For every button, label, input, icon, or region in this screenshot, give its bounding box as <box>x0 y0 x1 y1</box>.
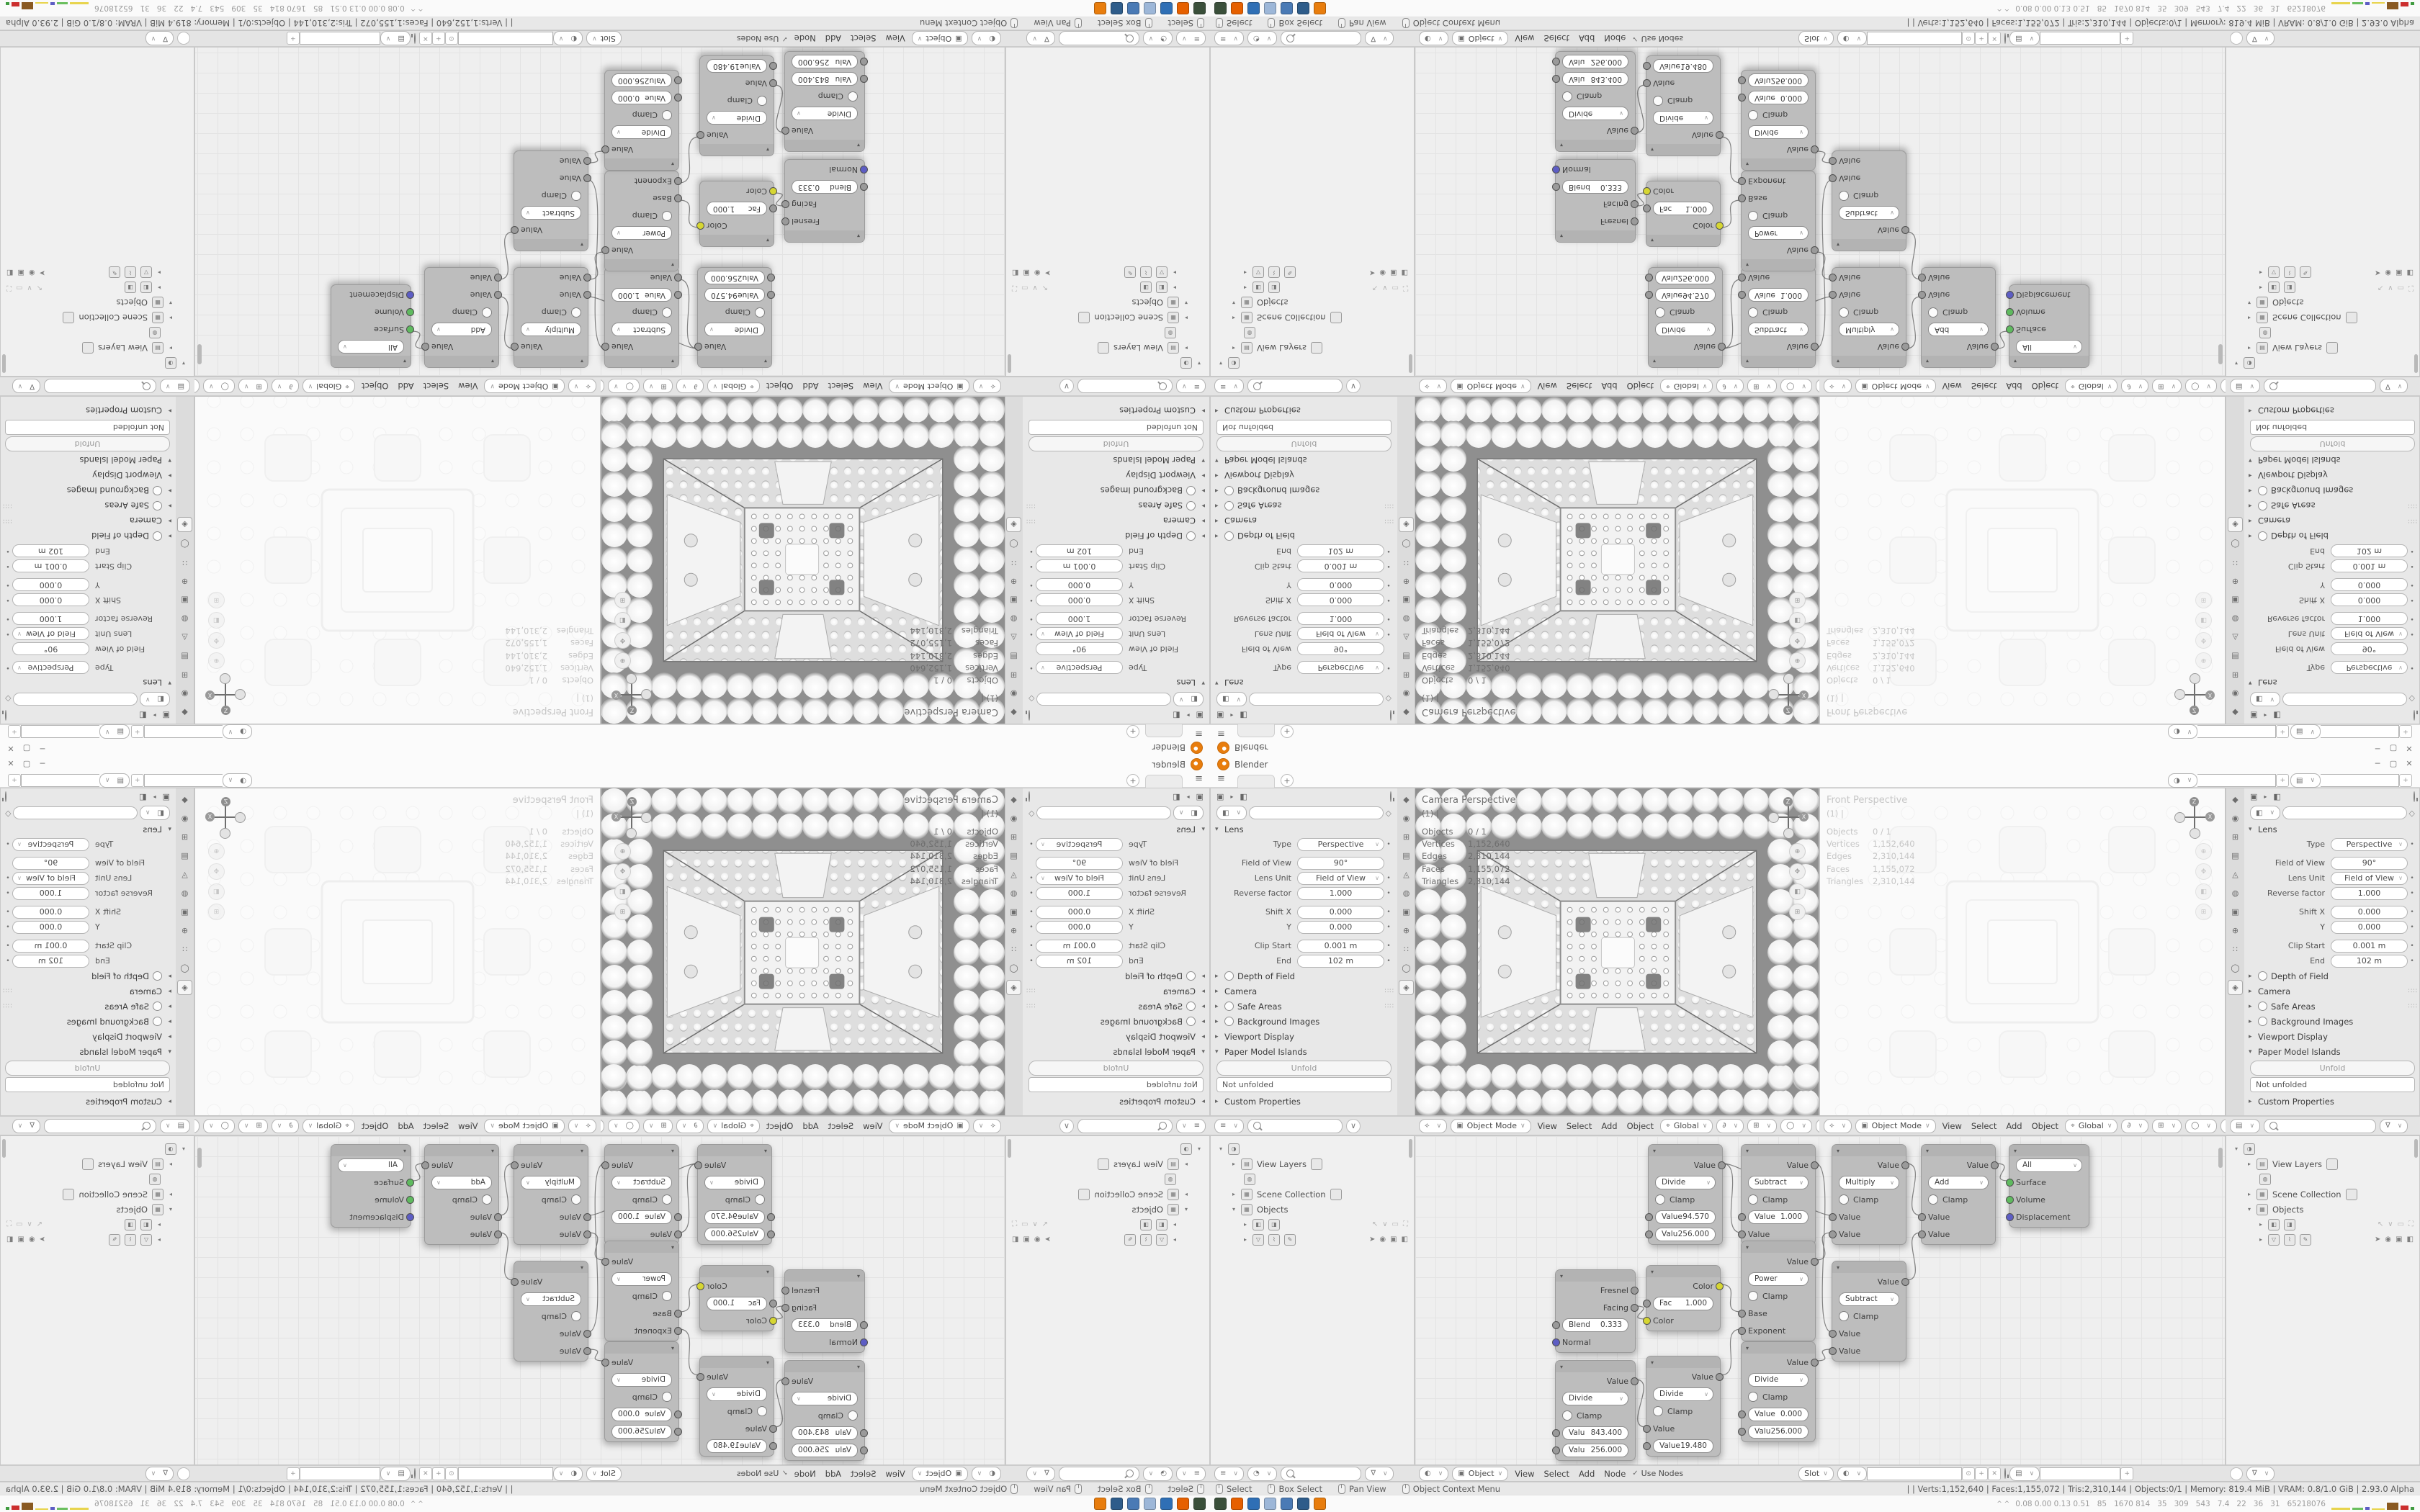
input-socket[interactable] <box>494 1230 502 1238</box>
panel-header-open[interactable]: ▾Paper Model Islands <box>2244 1044 2420 1059</box>
scene-selector-icon-button[interactable]: ◑∨ <box>223 724 252 739</box>
properties-display-dropdown[interactable]: ≡∨ <box>1176 1119 1206 1133</box>
property-value-field[interactable]: 0.000 <box>2331 906 2408 919</box>
outliner-search-input[interactable] <box>2264 379 2376 394</box>
outliner-search-input[interactable] <box>1059 32 1139 46</box>
add-workspace-button[interactable]: + <box>1126 774 1139 787</box>
node-value-field[interactable]: Valu256.000 <box>1655 271 1716 285</box>
id-action-button[interactable]: + <box>432 1467 445 1480</box>
taskbar-icon-firefox[interactable] <box>1231 1498 1243 1510</box>
node-operation-dropdown[interactable]: Subtract <box>1748 1176 1809 1189</box>
properties-tab-0-icon[interactable]: ◆ <box>2228 706 2242 719</box>
properties-tab-6-icon[interactable]: ▣ <box>178 905 192 919</box>
id-action-button[interactable]: ⊙ <box>1962 32 1975 45</box>
pivot-dropdown[interactable]: ∂∨ <box>1716 1119 1744 1133</box>
panel-checkbox[interactable] <box>1224 501 1234 510</box>
filter-toggle-button[interactable]: ∨ <box>1059 379 1074 394</box>
outliner-row[interactable]: ◍ <box>2233 1171 2419 1187</box>
input-socket[interactable] <box>1918 291 1926 299</box>
output-socket[interactable] <box>1631 1377 1639 1385</box>
outliner-scrollbar[interactable] <box>2 354 6 373</box>
node-material-output[interactable]: ▾AllSurfaceVolumeDisplacement <box>2009 284 2089 368</box>
panel-checkbox[interactable] <box>2258 531 2267 541</box>
snap-dropdown[interactable]: ⊞∨ <box>1747 379 1777 394</box>
taskbar-icon-file-explorer[interactable] <box>1281 1498 1293 1510</box>
properties-tab-1-icon[interactable]: ◉ <box>2228 687 2242 701</box>
restriction-icon[interactable]: ➤ <box>40 269 45 276</box>
filter-mode-dropdown[interactable]: ◔∨ <box>1143 32 1173 46</box>
properties-tab-7-icon[interactable]: ⊕ <box>1007 575 1021 588</box>
menu-add[interactable]: Add <box>395 1121 416 1131</box>
gizmo-axis-ball[interactable] <box>2174 812 2185 823</box>
taskbar-icon-hex-editor[interactable] <box>1247 2 1260 14</box>
node-operation-dropdown[interactable]: Divide <box>704 323 765 337</box>
mode-dropdown[interactable]: ▣Object Mode∨ <box>889 379 969 394</box>
id-action-button[interactable]: + <box>1975 32 1988 45</box>
outliner-display-dropdown[interactable]: ▤∨ <box>2230 379 2260 394</box>
id-name-field[interactable] <box>2282 693 2406 706</box>
outliner-row[interactable]: ▾◑ <box>1218 1141 1414 1156</box>
properties-tab-0-icon[interactable]: ◆ <box>2228 793 2242 806</box>
viewport-grid-button[interactable]: ⊞ <box>2195 904 2212 920</box>
input-socket[interactable] <box>1738 1410 1746 1418</box>
property-value-field[interactable]: 1.000 <box>1297 887 1384 900</box>
panel-checkbox[interactable] <box>153 531 162 541</box>
id-name-field[interactable] <box>13 806 137 819</box>
view-layer-selector[interactable]: ▤∨+ <box>8 773 130 788</box>
unfold-button[interactable]: Unfold <box>1216 1061 1391 1076</box>
menu-select[interactable]: Select <box>1968 382 1999 392</box>
id-block-camera-button[interactable]: ◧∨ <box>1216 806 1247 820</box>
view-layer-selector-new-button[interactable]: + <box>2399 774 2412 787</box>
node-header[interactable]: ▾ <box>1742 259 1815 271</box>
menu-object[interactable]: Object <box>2029 1121 2061 1131</box>
clamp-checkbox[interactable] <box>1655 1194 1665 1205</box>
restriction-icon[interactable]: ▣ <box>17 1236 24 1243</box>
properties-tab-10-icon[interactable]: ◈ <box>1006 980 1021 995</box>
taskbar-icon-firefox[interactable] <box>1177 2 1189 14</box>
properties-tab-3-icon[interactable]: ▤ <box>1007 649 1021 663</box>
properties-tab-6-icon[interactable]: ▣ <box>1399 593 1413 607</box>
node-header[interactable]: ▾ <box>331 356 411 367</box>
menu-view[interactable]: View <box>860 382 885 392</box>
proportional-edit-dropdown[interactable]: ◯∨ <box>1780 379 1812 394</box>
workspace-tab[interactable] <box>1237 775 1275 788</box>
panel-header-open[interactable]: ▾Lens <box>1023 675 1209 690</box>
navigation-gizmo[interactable]: ZX <box>205 797 246 837</box>
property-value-field[interactable]: 90° <box>2331 857 2408 870</box>
input-socket[interactable] <box>1738 1428 1746 1436</box>
gizmo-axis-ball[interactable] <box>2174 689 2185 700</box>
viewport-grid-button[interactable]: ⊞ <box>208 904 225 920</box>
panel-checkbox[interactable] <box>1186 531 1196 541</box>
restriction-icon[interactable]: ◉ <box>2385 1236 2391 1243</box>
property-value-field[interactable]: 102 m <box>1036 955 1123 968</box>
node-operation-dropdown[interactable]: Subtract <box>1839 207 1899 220</box>
snap-dropdown[interactable]: ⊞∨ <box>2152 379 2182 394</box>
outliner-scrollbar[interactable] <box>1008 354 1011 373</box>
input-socket[interactable] <box>406 308 414 316</box>
restriction-icon[interactable]: ➤ <box>1045 1236 1051 1243</box>
output-socket[interactable] <box>421 343 429 351</box>
panel-checkbox[interactable] <box>153 1017 162 1026</box>
input-socket[interactable] <box>1738 1230 1746 1238</box>
output-socket[interactable] <box>781 1304 789 1312</box>
view-layer-selector-icon-button[interactable]: ▤∨ <box>99 724 130 739</box>
pivot-dropdown[interactable]: ∂∨ <box>676 379 704 394</box>
menu-object[interactable]: Object <box>2029 382 2061 392</box>
panel-header-closed[interactable]: ▸Viewport Display <box>1023 1029 1209 1044</box>
viewport-grid-button[interactable]: ⊞ <box>1789 904 1806 920</box>
node-operation-dropdown[interactable]: Add <box>431 323 492 337</box>
maximize-button[interactable]: ▢ <box>19 741 35 755</box>
outliner-row-object[interactable]: ▸◧◨↖∨▭⛶ <box>1218 280 1414 295</box>
properties-tab-4-icon[interactable]: ◬ <box>1007 631 1021 644</box>
properties-tab-9-icon[interactable]: ◯ <box>2228 961 2242 975</box>
node-header[interactable]: ▾ <box>1742 1241 1815 1253</box>
outliner-row-scene-collection[interactable]: ▸▦Scene Collection <box>1218 1187 1414 1202</box>
node-value-field[interactable]: Value1.000 <box>1748 1210 1809 1224</box>
node-operation-dropdown[interactable]: All <box>2016 1158 2082 1172</box>
taskbar-icon-blender-app[interactable] <box>1314 2 1326 14</box>
taskbar-icon-capture-app[interactable] <box>1193 1498 1206 1510</box>
scene-selector-new-button[interactable]: + <box>131 774 144 787</box>
properties-tab-6-icon[interactable]: ▣ <box>2228 593 2242 607</box>
unfold-status-field[interactable]: Not unfolded <box>5 420 170 435</box>
use-nodes-checkbox[interactable]: ✓Use Nodes <box>737 34 788 43</box>
node-math-subtract-1[interactable]: ▾ValueSubtractClampValue1.000Value <box>604 1144 679 1245</box>
properties-tab-6-icon[interactable]: ▣ <box>1007 905 1021 919</box>
node-value-field[interactable]: Value0.000 <box>1748 1408 1809 1421</box>
id-action-button[interactable]: ⊙ <box>1962 1467 1975 1480</box>
property-value-field[interactable]: Perspective <box>1036 838 1123 851</box>
restriction-icon[interactable]: ▣ <box>17 269 24 276</box>
property-value-field[interactable]: 0.000 <box>1297 921 1384 934</box>
restriction-icon[interactable]: ↖ <box>1042 1220 1048 1228</box>
property-value-field[interactable]: Field of View <box>1297 872 1384 885</box>
node-operation-dropdown[interactable]: Divide <box>1655 323 1716 337</box>
gizmo-axis-ball[interactable] <box>641 689 652 700</box>
outliner-row-scene-collection[interactable]: ▸▦Scene Collection <box>1 310 187 325</box>
restriction-icon[interactable]: ∨ <box>27 284 32 292</box>
panel-header-closed[interactable]: ▸Depth of Field <box>1211 528 1397 544</box>
menu-add[interactable]: Add <box>1598 1121 1620 1131</box>
workspace-tab[interactable] <box>1145 775 1183 788</box>
outliner-filter-dropdown[interactable]: ∇∨ <box>12 379 40 394</box>
node-header[interactable]: ▾ <box>1649 356 1722 367</box>
restriction-icon[interactable]: ⛶ <box>6 1220 12 1228</box>
property-value-field[interactable]: Perspective <box>1297 838 1384 851</box>
workspace-menu-button[interactable]: ≡ <box>1195 773 1203 784</box>
menu-object[interactable]: Object <box>359 1121 391 1131</box>
node-header[interactable]: ▾ <box>1556 1270 1635 1282</box>
node-header[interactable]: ▾ <box>425 1145 498 1156</box>
properties-tab-3-icon[interactable]: ▤ <box>2228 649 2242 663</box>
input-socket[interactable] <box>769 1442 777 1450</box>
node-operation-dropdown[interactable]: Divide <box>707 1387 767 1401</box>
properties-tab-10-icon[interactable]: ◈ <box>1399 517 1414 532</box>
input-socket[interactable] <box>494 274 502 282</box>
scene-selector-icon-button[interactable]: ◑∨ <box>223 773 252 788</box>
properties-tab-7-icon[interactable]: ⊕ <box>1007 924 1021 937</box>
property-value-field[interactable]: 102 m <box>2331 545 2408 558</box>
clamp-checkbox[interactable] <box>1839 191 1849 201</box>
clamp-checkbox[interactable] <box>571 191 581 201</box>
outliner-row[interactable]: ◍ <box>1218 1171 1414 1187</box>
property-value-field[interactable]: 90° <box>1036 643 1123 656</box>
snap-dropdown[interactable]: ⊞∨ <box>643 1119 673 1133</box>
node-math-power[interactable]: ▾ValuePowerClampBaseExponent <box>1741 171 1816 271</box>
properties-tab-0-icon[interactable]: ◆ <box>1399 706 1413 719</box>
input-socket[interactable] <box>1829 157 1837 165</box>
gizmo-x-axis[interactable]: X <box>2205 690 2215 700</box>
properties-tab-8-icon[interactable]: ∷ <box>1399 942 1413 956</box>
input-socket[interactable] <box>494 1213 502 1221</box>
node-math-add[interactable]: ▾ValueAddClampValueValue <box>1921 267 1996 368</box>
input-socket[interactable] <box>406 291 414 299</box>
restriction-icon[interactable]: ◧ <box>2407 1236 2414 1243</box>
input-socket[interactable] <box>1552 1321 1560 1329</box>
scene-selector-icon-button[interactable]: ◑∨ <box>2168 773 2197 788</box>
taskbar-icon-notepad[interactable] <box>1264 2 1276 14</box>
outliner-row-view-layers[interactable]: ▸▤View Layers <box>1218 1156 1414 1171</box>
clamp-checkbox[interactable] <box>1562 1410 1572 1421</box>
outliner-filter-dropdown[interactable]: ∇∨ <box>1026 32 1054 46</box>
viewport-grid-button[interactable]: ⊞ <box>2195 592 2212 608</box>
node-value-field[interactable]: Fac1.000 <box>707 1297 767 1310</box>
outliner-row-objects[interactable]: ▾▦Objects <box>1006 1202 1202 1217</box>
properties-tab-9-icon[interactable]: ◯ <box>1399 961 1413 975</box>
node-header[interactable]: ▾ <box>700 144 774 156</box>
taskbar-icon-file-explorer[interactable] <box>1127 2 1139 14</box>
properties-tab-9-icon[interactable]: ◯ <box>178 961 192 975</box>
outliner-row[interactable]: ▾◑ <box>2233 356 2419 371</box>
sync-icon[interactable] <box>177 32 190 45</box>
restriction-icon[interactable]: ⛶ <box>2408 1220 2414 1228</box>
node-header[interactable]: ▾ <box>1556 140 1635 151</box>
panel-header-closed[interactable]: ▸Custom Properties <box>1211 403 1397 418</box>
navigation-gizmo[interactable]: ZX <box>2174 797 2215 837</box>
input-socket[interactable] <box>767 1213 775 1221</box>
restriction-icon[interactable]: ▣ <box>2396 269 2402 276</box>
node-header[interactable]: ▾ <box>1646 1356 1720 1368</box>
outliner-filter-dropdown[interactable]: ∇∨ <box>1365 1467 1393 1481</box>
material-name-field[interactable] <box>1867 32 1962 45</box>
scene-selector-new-button[interactable]: + <box>2276 725 2289 738</box>
node-value-field[interactable]: Value94.570 <box>1655 289 1716 302</box>
input-socket[interactable] <box>1552 58 1560 66</box>
texture-name-field[interactable] <box>300 1467 380 1480</box>
node-operation-dropdown[interactable]: Divide <box>1562 107 1628 121</box>
slot-dropdown[interactable]: Slot∨ <box>586 32 622 46</box>
property-value-field[interactable]: Field of View <box>1297 628 1384 641</box>
node-header[interactable]: ▾ <box>698 356 771 367</box>
node-value-field[interactable]: Valu256.000 <box>704 271 765 285</box>
restriction-icon[interactable]: ➤ <box>40 1236 45 1243</box>
properties-tab-0-icon[interactable]: ◆ <box>1399 793 1413 806</box>
shader-type-dropdown[interactable]: ▣Object∨ <box>912 1467 968 1481</box>
node-header[interactable]: ▾ <box>700 1266 774 1277</box>
node-header[interactable]: ▾ <box>1742 1145 1815 1156</box>
clamp-checkbox[interactable] <box>1748 1392 1758 1402</box>
node-value-field[interactable]: Valu256.000 <box>611 1425 672 1439</box>
outliner-row-object[interactable]: ▸◧◨↖∨▭⛶ <box>2233 1217 2419 1232</box>
outliner-row[interactable]: ◍ <box>1 1171 187 1187</box>
panel-checkbox[interactable] <box>1186 501 1196 510</box>
taskbar-icon-file-explorer[interactable] <box>1281 2 1293 14</box>
panel-checkbox[interactable] <box>1186 486 1196 495</box>
menu-view[interactable]: View <box>883 34 908 44</box>
properties-tab-0-icon[interactable]: ◆ <box>178 793 192 806</box>
maximize-button[interactable]: ▢ <box>2385 757 2401 771</box>
outliner-scrollbar[interactable] <box>2414 1139 2418 1158</box>
node-value-field[interactable]: Value0.000 <box>611 91 672 105</box>
input-socket[interactable] <box>1552 1338 1560 1346</box>
node-header[interactable]: ▾ <box>1832 239 1906 251</box>
input-socket[interactable] <box>583 1230 591 1238</box>
input-socket[interactable] <box>674 1310 682 1318</box>
navigation-gizmo[interactable]: ZX <box>205 675 246 715</box>
property-value-field[interactable]: 90° <box>1036 857 1123 870</box>
input-socket[interactable] <box>1552 183 1560 191</box>
id-block-camera-button[interactable]: ◧∨ <box>1216 692 1247 706</box>
node-math-subtract-1[interactable]: ▾ValueSubtractClampValue1.000Value <box>604 267 679 368</box>
restriction-icon[interactable]: ➤ <box>1045 269 1051 276</box>
clamp-checkbox[interactable] <box>482 1194 492 1205</box>
clamp-checkbox[interactable] <box>1748 307 1758 318</box>
view-layer-selector[interactable]: ▤∨+ <box>8 724 130 739</box>
outliner-search-input[interactable] <box>1281 32 1361 46</box>
panel-header-closed[interactable]: ▸Depth of Field <box>1023 528 1209 544</box>
taskbar-icon-notepad[interactable] <box>1264 1498 1276 1510</box>
properties-tab-5-icon[interactable]: ◍ <box>1007 612 1021 626</box>
panel-checkbox[interactable] <box>2258 1002 2267 1011</box>
id-name-field[interactable] <box>1036 693 1170 706</box>
viewport-grid-button[interactable]: ⊞ <box>614 904 631 920</box>
outliner-filter-dropdown[interactable]: ∇∨ <box>2380 379 2408 394</box>
properties-tab-6-icon[interactable]: ▣ <box>1399 905 1413 919</box>
scene-selector-value[interactable] <box>2197 725 2276 738</box>
properties-tab-7-icon[interactable]: ⊕ <box>178 924 192 937</box>
outliner-row-object[interactable]: ▸▽⌇✎➤◉▣◧ <box>1 1232 187 1247</box>
output-socket[interactable] <box>1811 1161 1819 1169</box>
taskbar-icon-image-viewer[interactable] <box>1111 1498 1123 1510</box>
node-header[interactable]: ▾ <box>605 259 678 271</box>
viewport-pan-button[interactable]: ✥ <box>208 632 225 649</box>
node-operation-dropdown[interactable]: Add <box>431 1176 492 1189</box>
outliner-row-scene-collection[interactable]: ▸▦Scene Collection <box>1006 310 1202 325</box>
node-value-field[interactable]: Value1.000 <box>611 289 672 302</box>
node-math-divide-3[interactable]: ▾ValueDivideClampValueValue19.480 <box>1646 1356 1721 1457</box>
node-math-divide-2[interactable]: ▾ValueDivideClampValu843.400Valu256.000 <box>784 51 865 152</box>
node-layer-weight[interactable]: ▾FresnelFacingBlend0.333Normal <box>1555 159 1636 243</box>
output-socket[interactable] <box>781 217 789 225</box>
node-math-divide-2[interactable]: ▾ValueDivideClampValu843.400Valu256.000 <box>784 1360 865 1461</box>
properties-tab-9-icon[interactable]: ◯ <box>2228 537 2242 551</box>
output-socket[interactable] <box>601 1258 609 1266</box>
add-workspace-button[interactable]: + <box>1281 774 1294 787</box>
node-math-power[interactable]: ▾ValuePowerClampBaseExponent <box>1741 1241 1816 1341</box>
navigation-gizmo[interactable]: ZX <box>1768 675 1809 715</box>
clamp-checkbox[interactable] <box>571 307 581 318</box>
filter-mode-dropdown[interactable]: ◔∨ <box>1247 32 1277 46</box>
node-value-field[interactable]: Valu256.000 <box>1655 1228 1716 1241</box>
pin-icon[interactable] <box>414 1468 416 1479</box>
output-socket[interactable] <box>1716 131 1724 139</box>
node-operation-dropdown[interactable]: Multiply <box>1839 1176 1899 1189</box>
node-operation-dropdown[interactable]: Multiply <box>1839 323 1899 337</box>
unfold-status-field[interactable]: Not unfolded <box>2250 420 2415 435</box>
properties-tab-3-icon[interactable]: ▤ <box>178 849 192 863</box>
outliner-display-dropdown[interactable]: ≡∨ <box>1176 32 1206 46</box>
node-operation-dropdown[interactable]: All <box>2016 341 2082 354</box>
viewport-pan-button[interactable]: ✥ <box>614 863 631 880</box>
output-socket[interactable] <box>1901 1161 1909 1169</box>
node-value-field[interactable]: Value19.480 <box>1653 60 1713 73</box>
panel-checkbox[interactable] <box>153 501 162 510</box>
property-value-field[interactable]: 90° <box>12 857 89 870</box>
property-value-field[interactable]: 0.000 <box>1036 906 1123 919</box>
clamp-checkbox[interactable] <box>662 1194 672 1205</box>
property-value-field[interactable]: 0.001 m <box>1297 560 1384 573</box>
restriction-icon[interactable]: ◉ <box>1034 1236 1041 1243</box>
input-socket[interactable] <box>1829 274 1837 282</box>
property-value-field[interactable]: 0.001 m <box>1036 560 1123 573</box>
viewport-pan-button[interactable]: ✥ <box>2195 863 2212 880</box>
properties-tab-5-icon[interactable]: ◍ <box>178 886 192 900</box>
node-math-divide-4[interactable]: ▾ValueDivideClampValue0.000Valu256.000 <box>1741 1341 1816 1442</box>
output-socket[interactable] <box>1811 246 1819 254</box>
node-math-divide-4[interactable]: ▾ValueDivideClampValue0.000Valu256.000 <box>1741 70 1816 171</box>
editor-type-button[interactable]: ⟡∨ <box>568 1119 596 1133</box>
id-action-button[interactable]: ✕ <box>419 1467 432 1480</box>
input-socket[interactable] <box>767 1230 775 1238</box>
property-value-field[interactable]: Field of View <box>1036 628 1123 641</box>
node-operation-dropdown[interactable]: Divide <box>707 112 767 125</box>
clamp-checkbox[interactable] <box>662 1392 672 1402</box>
taskbar-icon-firefox[interactable] <box>1177 1498 1189 1510</box>
input-socket[interactable] <box>860 1429 868 1437</box>
view-layer-selector-value[interactable] <box>2321 725 2399 738</box>
node-header[interactable]: ▾ <box>700 1356 774 1368</box>
properties-tab-6-icon[interactable]: ▣ <box>2228 905 2242 919</box>
node-operation-dropdown[interactable]: Subtract <box>1839 1292 1899 1306</box>
input-socket[interactable] <box>583 1213 591 1221</box>
clamp-checkbox[interactable] <box>1748 1194 1758 1205</box>
outliner-display-dropdown[interactable]: ▤∨ <box>160 379 190 394</box>
viewport-camera-button[interactable]: ◧ <box>2195 612 2212 629</box>
menu-view[interactable]: View <box>1940 382 1965 392</box>
panel-header-closed[interactable]: ▸Custom Properties <box>1211 1094 1397 1109</box>
input-socket[interactable] <box>1738 177 1746 185</box>
property-value-field[interactable]: Perspective <box>12 662 89 675</box>
workspace-menu-button[interactable]: ≡ <box>1195 728 1203 739</box>
mode-dropdown[interactable]: ▣Object Mode∨ <box>484 1119 564 1133</box>
pivot-dropdown[interactable]: ∂∨ <box>2121 1119 2148 1133</box>
node-math-multiply[interactable]: ▾ValueMultiplyClampValueValue <box>514 1144 588 1245</box>
gizmo-axis-ball[interactable] <box>626 673 637 684</box>
input-socket[interactable] <box>769 62 777 70</box>
properties-tab-5-icon[interactable]: ◍ <box>1399 886 1413 900</box>
node-math-divide-3[interactable]: ▾ValueDivideClampValueValue19.480 <box>1646 55 1721 156</box>
panel-header-open[interactable]: ▾Lens <box>1211 822 1397 837</box>
taskbar-icon-capture-app[interactable] <box>1193 2 1206 14</box>
properties-tab-1-icon[interactable]: ◉ <box>178 687 192 701</box>
clamp-checkbox[interactable] <box>755 307 765 318</box>
unfold-status-field[interactable]: Not unfolded <box>1216 1077 1391 1092</box>
restriction-icon[interactable]: ↖ <box>1372 284 1378 292</box>
editor-type-button[interactable]: ⟡∨ <box>1419 379 1447 394</box>
